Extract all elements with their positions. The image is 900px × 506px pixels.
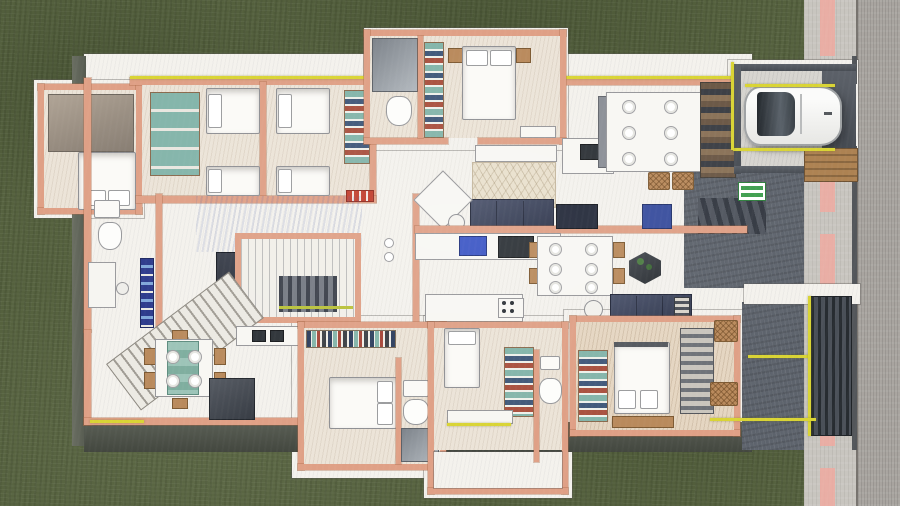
dressing-bench [447,410,513,424]
rattan-chair [714,320,738,342]
sofa-seam [496,201,497,226]
master-pillow [466,50,488,66]
plate [166,374,180,388]
knob [510,301,514,305]
courtyard-glass-line-v [808,296,811,436]
chair [613,268,625,284]
plate [664,126,678,140]
north-dining-table [606,92,704,172]
sc-wall-s [428,488,568,494]
plate [585,263,598,276]
carport-bay-line-n [745,84,835,87]
master-bench [520,126,556,138]
center-bath-toilet [539,378,562,404]
sofa-seam [523,201,524,226]
carport-wall-w [734,64,741,174]
plate [188,350,202,364]
floor-plan-rendering [0,0,900,506]
chair [172,398,188,409]
pillow [640,390,658,409]
hall-light [384,252,394,262]
counter-appliance [270,330,284,342]
plate [664,100,678,114]
boundary-wall-s [852,304,857,450]
bedroom-a-wardrobe [150,92,200,176]
plate [664,152,678,166]
knob [502,301,506,305]
rattan-chair [672,172,694,190]
master-wall-s2 [478,138,566,144]
hall-light [384,238,394,248]
car-roof-line [800,94,802,134]
plate [188,374,202,388]
plate [549,263,562,276]
plate [549,243,562,256]
sw-ensuite-toilet [403,399,429,425]
rattan-chair [710,382,738,406]
carport-wall-n [734,64,856,71]
plate [622,100,636,114]
master-pillow [490,50,512,66]
counter-appliance [252,330,266,342]
master-toilet [386,96,412,126]
daybed-pillow [448,331,476,345]
entry-courtyard-lower [742,302,804,450]
center-bath-partition [534,350,539,462]
bedroom-a-pillow-2 [208,169,222,193]
bed-end-bench [612,416,674,428]
courtyard-glass-line-h [748,355,810,358]
master-shower [372,38,418,92]
plate [622,152,636,166]
knob [502,309,506,313]
nightstand [448,48,463,63]
bedroom-se-wall-s [570,430,740,436]
se-headboard [614,342,668,347]
rattan-chair [648,172,670,190]
plate [549,281,562,294]
bedroom-nw-wardrobe [48,94,134,152]
carport-bay-line-w [731,62,734,150]
folded-clothes-shelf [504,347,534,417]
sw-ensuite-sink [403,380,429,397]
plate [585,281,598,294]
plate [166,350,180,364]
dining-wall-w [84,330,91,425]
bedroom-b-pillow [278,94,292,128]
carport-bay-line-s [733,148,835,151]
sc-porch-floor [434,452,562,488]
west-bath-partition [156,194,162,332]
exit-mat [738,182,766,201]
louver-screen [810,296,852,436]
pillow [377,381,393,403]
car-windshield [757,92,795,136]
west-bath-sink [94,200,120,218]
bedroom-a-pillow [208,94,222,128]
canopy-glass-line [710,418,816,421]
se-wardrobe-e [680,328,714,414]
plant-leaves [637,258,644,265]
dining-window-line [90,420,144,423]
master-wall-s1 [364,138,448,144]
master-wardrobe [424,42,444,138]
plant-leaves [646,264,652,270]
se-wardrobe-w [578,350,608,422]
bench-glass-edge [447,423,511,426]
center-bath-sink [540,356,560,370]
kids-bedroom-partition [260,82,266,202]
wall-oven-blue [642,204,672,229]
master-bath-partition [418,36,423,138]
chair [214,348,226,365]
bedroom-sw-wall-s [298,464,446,470]
plate [585,243,598,256]
kitchenette-sink [580,144,600,160]
knob [510,309,514,313]
tv-panel [556,204,598,229]
pillow [377,403,393,425]
console [475,145,557,162]
street-asphalt [858,0,900,506]
dark-island-cabinet [209,378,255,420]
stair-void-glass-edge [279,306,353,309]
study-desk [88,262,116,308]
chair [613,242,625,258]
book-spine-shelf [306,330,396,348]
kitchen-sink-blue [459,236,487,256]
plate [622,126,636,140]
study-stool [116,282,129,295]
navy-book-ledge [140,258,154,328]
nightstand [516,48,531,63]
living-wall-w [413,194,419,330]
pillow [618,390,636,409]
master-wall-e [560,30,566,144]
west-bath-toilet [98,222,122,250]
bedroom-b-pillow-2 [278,169,292,193]
sc-wall-e [562,322,568,494]
car-front-badge [824,112,832,115]
timber-deck [804,148,858,182]
